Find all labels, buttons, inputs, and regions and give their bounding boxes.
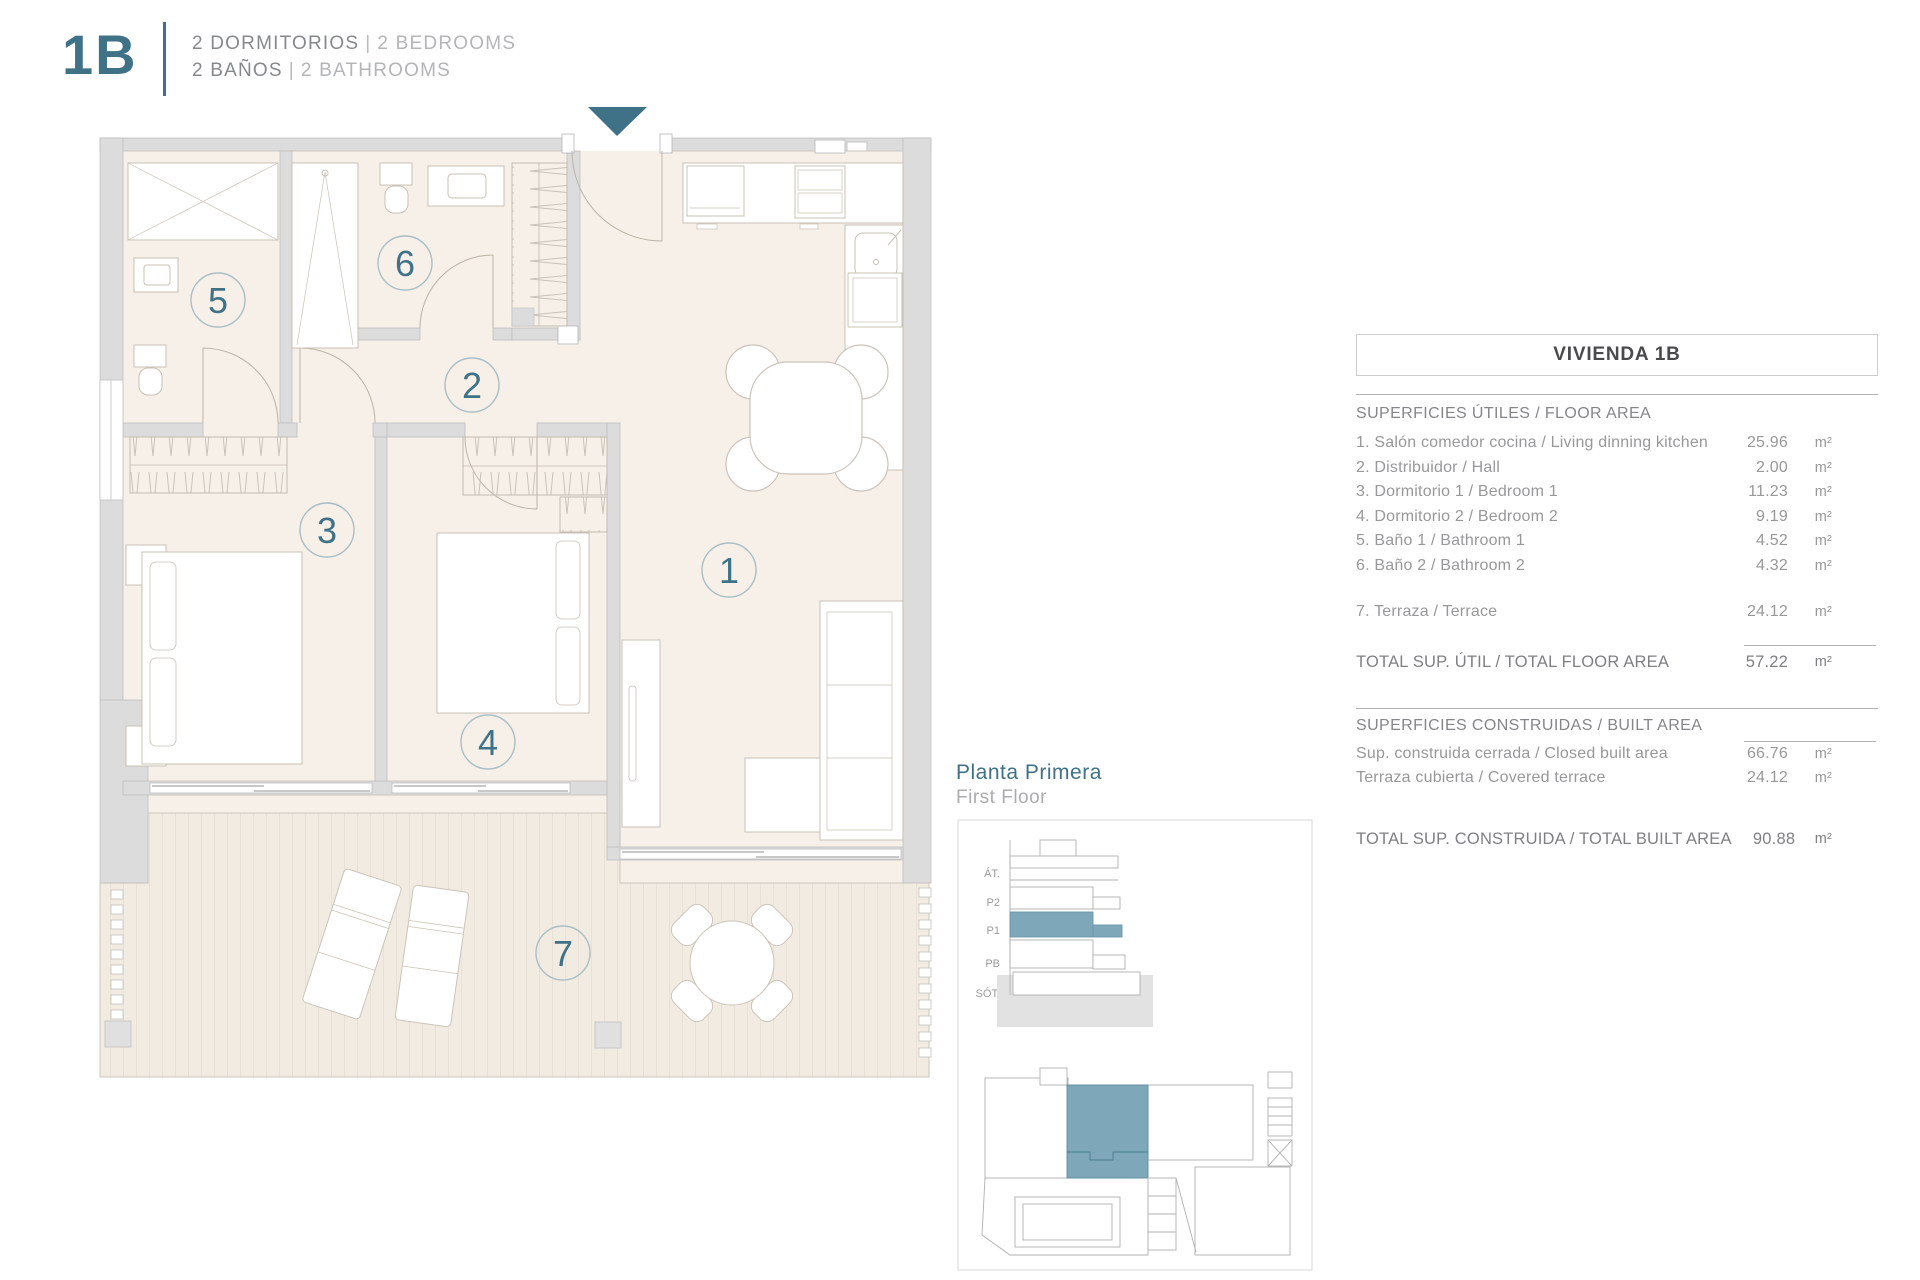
total-floor-area-row: TOTAL SUP. ÚTIL / TOTAL FLOOR AREA57.22m…: [1356, 648, 1878, 676]
bathrooms-en: 2 BATHROOMS: [301, 60, 451, 81]
entry-closet: [512, 163, 567, 326]
floor-plan: 1 2 3 4 5 6 7: [88, 104, 950, 1100]
highlighted-unit: [1067, 1085, 1148, 1178]
terrace-post: [105, 1021, 131, 1047]
table-row: 5. Baño 1 / Bathroom 14.52m²: [1356, 529, 1878, 554]
floor-label-es: Planta Primera: [956, 760, 1102, 785]
terrace-row: 7. Terraza / Terrace24.12m²: [1356, 600, 1878, 625]
divider: [1356, 708, 1878, 709]
floor-area-section-header: SUPERFICIES ÚTILES / FLOOR AREA: [1356, 403, 1878, 425]
level-label-p2: P2: [987, 897, 1000, 909]
svg-text:3: 3: [317, 510, 337, 551]
bathrooms-es: 2 BAÑOS: [192, 60, 283, 81]
table-row: 3. Dormitorio 1 / Bedroom 111.23m²: [1356, 480, 1878, 505]
entry-arrow-icon: [588, 107, 647, 136]
table-title-box: VIVIENDA 1B: [1356, 334, 1878, 376]
floorplan-page: { "header": { "code": "1B", "line1": { "…: [0, 0, 1920, 1280]
bathrooms-line: 2 BAÑOS|2 BATHROOMS: [192, 57, 516, 84]
key-plan: ÁT. P2 P1 PB SÓT.: [955, 817, 1317, 1275]
svg-text:7: 7: [553, 933, 573, 974]
table-row: Sup. construida cerrada / Closed built a…: [1356, 742, 1878, 767]
unit-code: 1B: [62, 22, 138, 87]
level-label-p1: P1: [987, 925, 1000, 937]
bedroom1-furniture: [126, 437, 302, 766]
terrace-post: [595, 1022, 621, 1048]
built-area-rows: Sup. construida cerrada / Closed built a…: [1356, 742, 1878, 791]
bedroom2-furniture: [437, 437, 607, 713]
subtotal-divider: [1744, 645, 1876, 646]
separator: |: [359, 33, 377, 54]
table-row: 4. Dormitorio 2 / Bedroom 29.19m²: [1356, 505, 1878, 530]
table-row: 1. Salón comedor cocina / Living dinning…: [1356, 431, 1878, 456]
floor-area-rows: 1. Salón comedor cocina / Living dinning…: [1356, 431, 1878, 578]
built-area-section-header: SUPERFICIES CONSTRUIDAS / BUILT AREA: [1356, 715, 1878, 737]
table-row: 6. Baño 2 / Bathroom 24.32m²: [1356, 554, 1878, 579]
side-window: [100, 380, 123, 500]
svg-text:1: 1: [719, 550, 739, 591]
bedrooms-en: 2 BEDROOMS: [377, 33, 516, 54]
unit-summary: 2 DORMITORIOS|2 BEDROOMS 2 BAÑOS|2 BATHR…: [192, 30, 516, 84]
floor-label-en: First Floor: [956, 785, 1102, 810]
svg-text:2: 2: [462, 365, 482, 406]
svg-text:5: 5: [208, 280, 228, 321]
logo-divider: [163, 22, 166, 96]
area-table: VIVIENDA 1B SUPERFICIES ÚTILES / FLOOR A…: [1356, 334, 1878, 853]
divider: [1356, 394, 1878, 395]
separator: |: [283, 60, 301, 81]
svg-text:4: 4: [478, 722, 498, 763]
level-label-pb: PB: [985, 958, 1000, 970]
bedrooms-line: 2 DORMITORIOS|2 BEDROOMS: [192, 30, 516, 57]
floor-label: Planta Primera First Floor: [956, 760, 1102, 810]
level-label-sotano: SÓT.: [976, 987, 1000, 1000]
total-built-area-row: TOTAL SUP. CONSTRUIDA / TOTAL BUILT AREA…: [1356, 825, 1878, 853]
level-label-atico: ÁT.: [984, 867, 1000, 880]
bedrooms-es: 2 DORMITORIOS: [192, 33, 359, 54]
table-row: Terraza cubierta / Covered terrace24.12m…: [1356, 766, 1878, 791]
table-title: VIVIENDA 1B: [1553, 344, 1680, 366]
table-row: 2. Distribuidor / Hall2.00m²: [1356, 456, 1878, 481]
svg-text:6: 6: [395, 243, 415, 284]
